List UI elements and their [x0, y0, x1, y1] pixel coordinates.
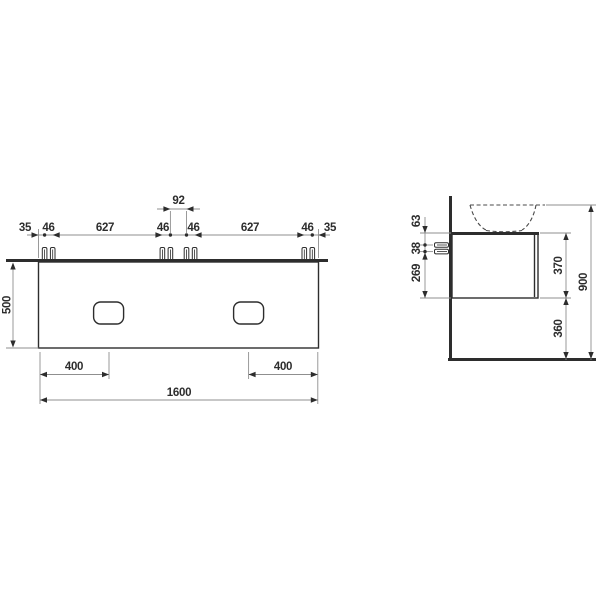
dim-label-92: 92 [172, 195, 184, 207]
dim-label-400-right: 400 [274, 361, 292, 373]
mounting-screws-front [42, 248, 314, 261]
dim-dot [169, 233, 172, 236]
mounting-screw [168, 248, 173, 261]
dim-dot [423, 243, 426, 246]
dim-arrow [40, 397, 47, 402]
mounting-screw [302, 248, 307, 261]
mounting-screw [50, 248, 55, 261]
mounting-screw [184, 248, 189, 261]
vanity-technical-drawing: 35 46 627 46 92 46 627 46 35 [0, 0, 600, 600]
dim-arrow [588, 205, 593, 212]
drawing-canvas: 35 46 627 46 92 46 627 46 35 [0, 0, 600, 600]
dim-arrow [422, 253, 427, 260]
dim-arrow [563, 233, 568, 240]
front-top-dimensions: 35 46 627 46 92 46 627 46 35 [19, 195, 337, 258]
dim-label-900: 900 [578, 273, 590, 291]
mounting-screw [160, 248, 165, 261]
dim-label-46-4: 46 [301, 222, 313, 234]
dim-label-627-left: 627 [96, 222, 114, 234]
dim-label-360: 360 [553, 319, 565, 337]
dim-arrow [311, 372, 318, 377]
front-height-dimension: 500 [2, 263, 16, 348]
side-left-dimensions: 63 38 269 [411, 215, 451, 298]
dim-arrow [32, 232, 39, 237]
dim-label-63: 63 [411, 215, 423, 227]
basin-side-left [470, 205, 486, 230]
mounting-screw [435, 249, 449, 254]
dim-arrow [249, 372, 256, 377]
dim-arrow [563, 352, 568, 359]
dim-arrow [588, 352, 593, 359]
dim-label-400-left: 400 [65, 361, 83, 373]
mounting-screw [310, 248, 315, 261]
dim-arrow [187, 206, 194, 211]
dim-label-35-left: 35 [19, 222, 32, 234]
dim-arrow [422, 291, 427, 298]
dim-label-35-right: 35 [324, 222, 337, 234]
dim-arrow [422, 226, 427, 233]
dim-arrow [563, 298, 568, 305]
dim-label-46-3: 46 [187, 222, 199, 234]
dim-label-627-right: 627 [241, 222, 259, 234]
dim-label-269: 269 [411, 264, 423, 282]
dim-arrow [10, 341, 15, 348]
mounting-screw [435, 243, 449, 248]
dim-label-46-1: 46 [42, 222, 54, 234]
dim-arrow [102, 372, 109, 377]
side-view: 63 38 269 370 360 900 [411, 196, 596, 360]
washbasin-dashed-outline [470, 205, 545, 232]
dim-label-1600: 1600 [167, 387, 191, 399]
dim-arrow [563, 291, 568, 298]
side-right-dimensions: 370 360 900 [540, 205, 596, 360]
dim-arrow [163, 206, 170, 211]
mounting-screw [42, 248, 47, 261]
dim-label-500: 500 [2, 296, 14, 314]
dim-label-370: 370 [553, 256, 565, 274]
cabinet-body [39, 262, 319, 348]
front-bottom-dimensions: 400 400 1600 [40, 352, 318, 404]
basin-side-right [522, 205, 536, 230]
handle-cutout-right [234, 302, 264, 324]
mounting-screws-side [435, 243, 449, 254]
dim-label-38: 38 [411, 241, 423, 254]
cabinet-side-profile [452, 233, 538, 298]
dim-label-46-2: 46 [157, 222, 169, 234]
mounting-screw [192, 248, 197, 261]
dim-arrow [10, 263, 15, 270]
handle-cutout-left [94, 302, 124, 324]
basin-base [486, 231, 522, 232]
dim-arrow [311, 397, 318, 402]
dim-arrow [40, 372, 47, 377]
front-view: 35 46 627 46 92 46 627 46 35 [2, 195, 337, 404]
